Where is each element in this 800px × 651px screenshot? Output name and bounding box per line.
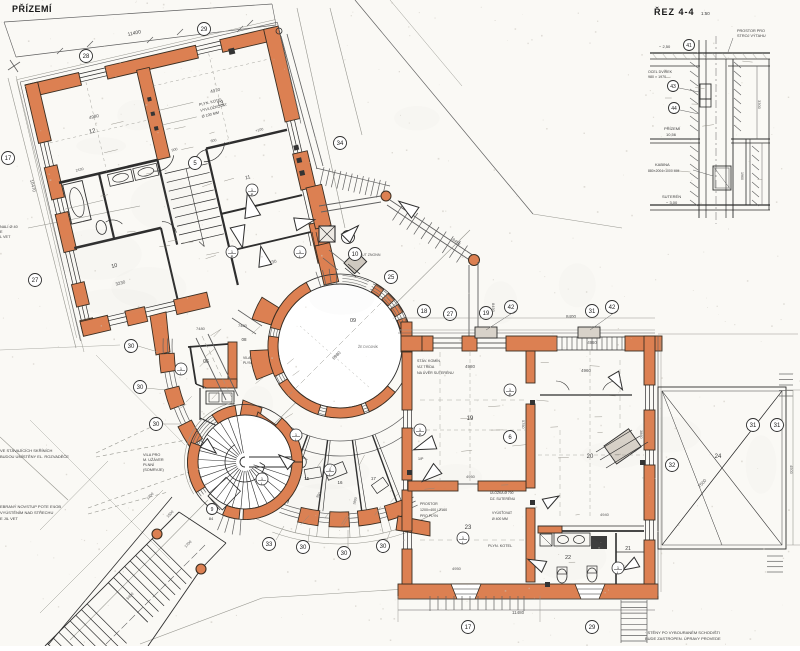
svg-text:980 × 1970: 980 × 1970	[648, 75, 666, 79]
svg-text:· STĚNY PO VYBOURANÉM SCHODIŠT: · STĚNY PO VYBOURANÉM SCHODIŠTI	[645, 630, 720, 635]
svg-text:9: 9	[211, 507, 214, 513]
svg-text:DZ. SUTERÉNU: DZ. SUTERÉNU	[490, 496, 516, 501]
svg-text:1/P: 1/P	[418, 457, 424, 461]
svg-text:VYÚSTĚNÍM NAD STŘECHU: VYÚSTĚNÍM NAD STŘECHU	[0, 510, 53, 515]
svg-text:PLNNÍ: PLNNÍ	[143, 463, 155, 467]
svg-text:M. UŽÁVER: M. UŽÁVER	[143, 457, 164, 462]
svg-text:33: 33	[266, 542, 273, 548]
svg-text:4950: 4950	[452, 566, 462, 571]
svg-text:17: 17	[465, 625, 472, 631]
svg-text:24: 24	[715, 454, 722, 460]
svg-text:ULOŽKA Ø 700: ULOŽKA Ø 700	[490, 490, 514, 495]
svg-text:PLYN. KOTEL: PLYN. KOTEL	[488, 544, 512, 548]
svg-text:84: 84	[209, 516, 214, 521]
svg-text:30: 30	[128, 344, 135, 350]
svg-text:NA ÚVĚR SUTERÉNU: NA ÚVĚR SUTERÉNU	[417, 370, 454, 375]
svg-text:4960: 4960	[587, 340, 597, 345]
svg-text:STROJ VÝTAHU: STROJ VÝTAHU	[737, 34, 766, 38]
svg-text:KABINA: KABINA	[655, 162, 670, 167]
svg-text:L VET: L VET	[0, 235, 11, 239]
svg-text:− 2,50: − 2,50	[659, 44, 671, 49]
svg-text:31: 31	[750, 423, 757, 429]
svg-text:21: 21	[625, 546, 631, 552]
svg-text:UT ZNONN: UT ZNONN	[362, 253, 381, 257]
svg-text:5750: 5750	[521, 420, 525, 428]
svg-text:28: 28	[83, 54, 90, 60]
svg-text:43: 43	[670, 84, 676, 90]
svg-text:STÁV. KOMÍN: STÁV. KOMÍN	[417, 359, 440, 363]
svg-text:30: 30	[380, 544, 387, 550]
svg-text:10: 10	[352, 252, 359, 258]
svg-text:08: 08	[241, 337, 247, 342]
svg-text:PŘÍZEMÍ: PŘÍZEMÍ	[664, 126, 681, 131]
svg-text:NALÍ Ø 40: NALÍ Ø 40	[0, 225, 18, 229]
svg-text:18: 18	[421, 309, 428, 315]
svg-text:32: 32	[669, 463, 676, 469]
svg-text:30: 30	[137, 385, 144, 391]
svg-text:PROSTOR PRO: PROSTOR PRO	[737, 29, 765, 33]
svg-text:10,56: 10,56	[666, 132, 677, 137]
svg-text:P: P	[251, 192, 254, 197]
svg-text:(SOMRVJE): (SOMRVJE)	[143, 468, 165, 472]
svg-text:31: 31	[589, 309, 596, 315]
svg-text:25: 25	[388, 275, 395, 281]
svg-text:ŘEZ 4-4: ŘEZ 4-4	[654, 6, 695, 17]
svg-text:PROSTOR: PROSTOR	[420, 502, 438, 506]
svg-text:4980: 4980	[465, 364, 476, 369]
svg-text:4940: 4940	[600, 512, 610, 517]
svg-text:P: P	[419, 432, 422, 437]
svg-text:Ø 400 MM: Ø 400 MM	[492, 517, 508, 521]
svg-text:11480: 11480	[512, 610, 525, 615]
svg-text:ŽE DVOJNÍK: ŽE DVOJNÍK	[358, 344, 379, 349]
svg-text:BUDE ZASTROPEN. ÚPRAVY PROVEDE: BUDE ZASTROPEN. ÚPRAVY PROVEDE	[645, 636, 721, 641]
svg-text:VIZ TŘÍDA: VIZ TŘÍDA	[417, 364, 435, 369]
svg-text:3300: 3300	[757, 100, 762, 110]
svg-text:EBRANÝ NOVSTUP POTE ЕЧОВ: EBRANÝ NOVSTUP POTE ЕЧОВ	[0, 504, 61, 509]
svg-text:30: 30	[300, 545, 307, 551]
svg-text:34: 34	[337, 141, 344, 147]
svg-text:44: 44	[671, 106, 677, 112]
svg-text:4500: 4500	[789, 465, 794, 475]
svg-text:17: 17	[5, 156, 12, 162]
svg-text:7480: 7480	[196, 326, 206, 331]
svg-text:29: 29	[589, 625, 596, 631]
svg-text:27: 27	[32, 278, 39, 284]
svg-text:VE STÁVAJÍCÍCH SKŘÍNÍCH: VE STÁVAJÍCÍCH SKŘÍNÍCH	[0, 448, 52, 453]
svg-text:30: 30	[153, 422, 160, 428]
svg-text:VYÚSŤOVAT: VYÚSŤOVAT	[492, 510, 512, 515]
svg-text:BUDOU UMÍSTĚNY EL. ROZVADĚČE: BUDOU UMÍSTĚNY EL. ROZVADĚČE	[0, 454, 69, 459]
svg-text:31: 31	[774, 423, 781, 429]
svg-text:VILA PRO: VILA PRO	[143, 453, 160, 457]
svg-text:30: 30	[341, 551, 348, 557]
svg-text:09: 09	[350, 318, 356, 324]
svg-text:− 3,00: − 3,00	[666, 200, 678, 205]
svg-text:23: 23	[465, 525, 472, 531]
svg-text:880×2004×1000 MM: 880×2004×1000 MM	[648, 169, 679, 173]
svg-text:1960: 1960	[740, 172, 744, 180]
svg-text:E JIL VET: E JIL VET	[0, 516, 18, 521]
svg-text:41: 41	[686, 43, 692, 49]
svg-text:P: P	[231, 254, 234, 259]
svg-text:SUTERÉN: SUTERÉN	[662, 194, 681, 199]
svg-text:P: P	[509, 392, 512, 397]
svg-text:PŘÍZEMÍ: PŘÍZEMÍ	[12, 3, 52, 14]
svg-text:1:50: 1:50	[701, 11, 710, 16]
svg-text:7480: 7480	[238, 323, 248, 328]
svg-text:PRO PLYN: PRO PLYN	[420, 514, 438, 518]
svg-text:29: 29	[201, 27, 208, 33]
svg-text:17: 17	[371, 476, 377, 481]
svg-text:42: 42	[609, 305, 616, 311]
svg-text:1200×400 / 2160: 1200×400 / 2160	[420, 508, 447, 512]
svg-text:27: 27	[447, 312, 454, 318]
svg-text:OCEL DVÍŘEK: OCEL DVÍŘEK	[648, 69, 673, 74]
